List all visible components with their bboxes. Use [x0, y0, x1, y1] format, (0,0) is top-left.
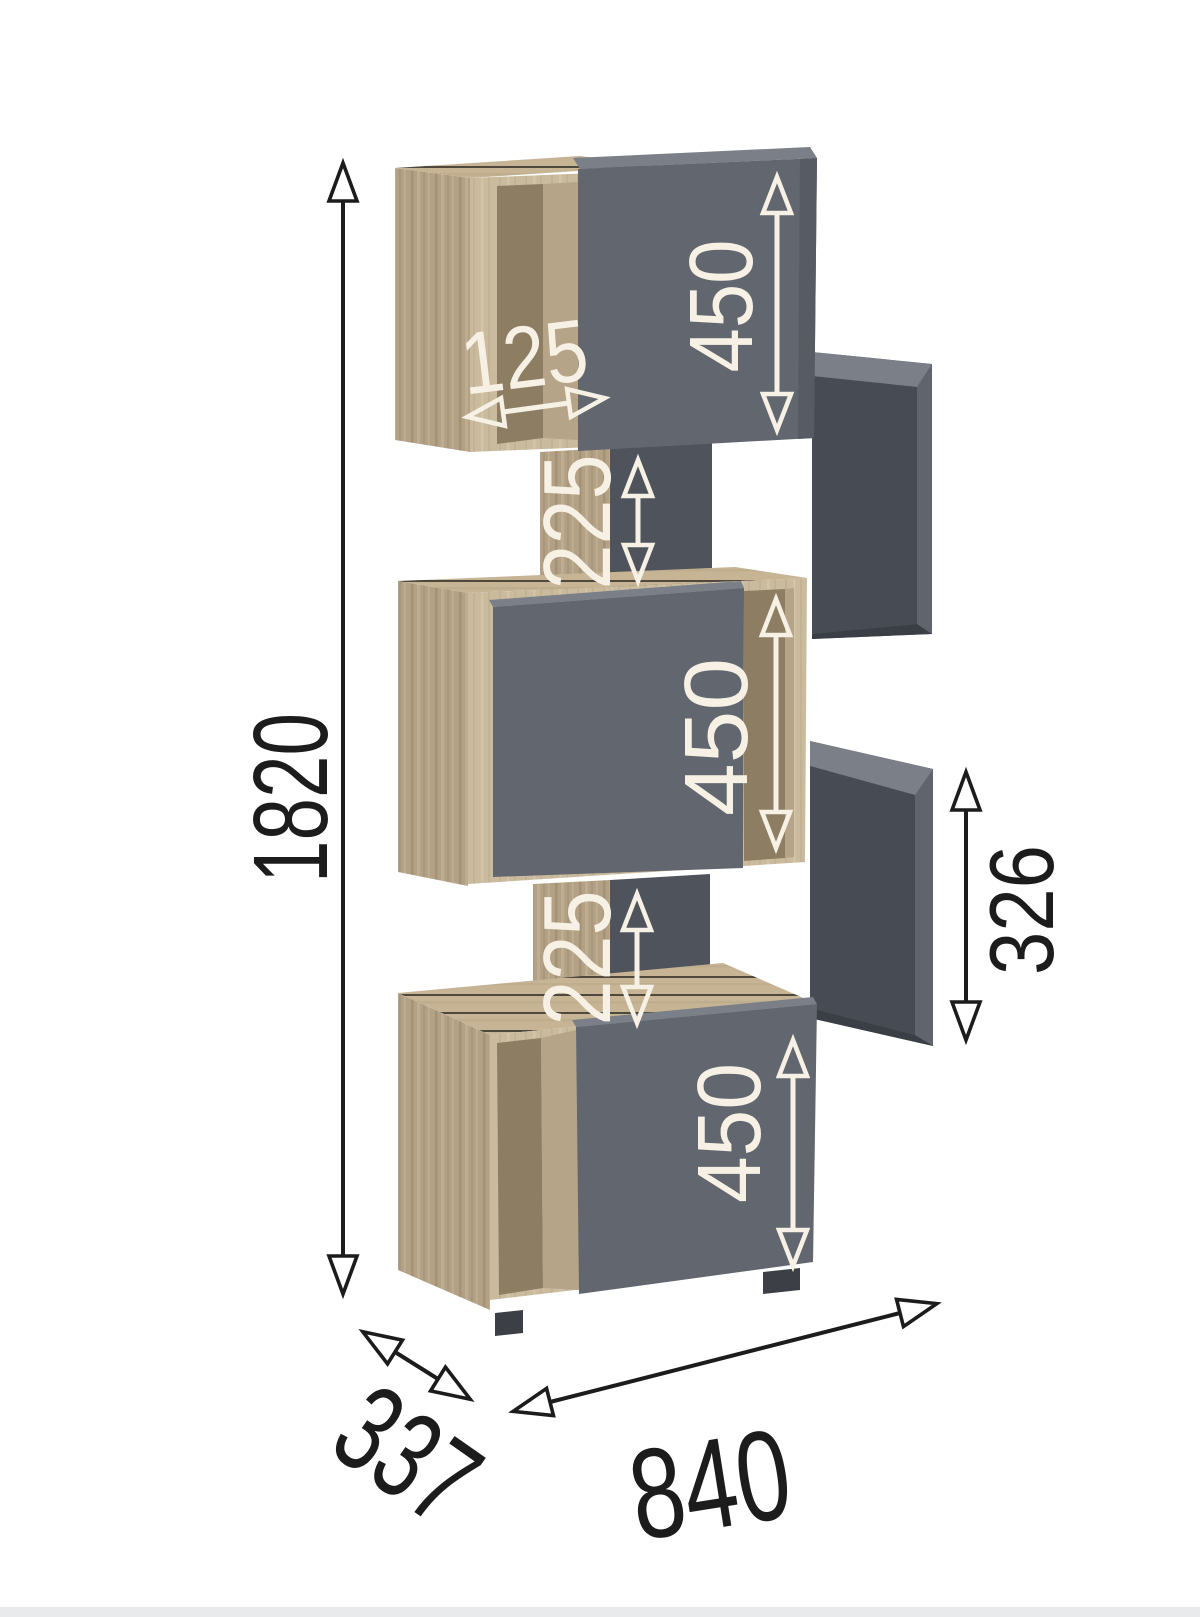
top-cube-side-panel: [395, 168, 470, 452]
dim-upper-gap: 225: [524, 455, 638, 590]
dim-overall-height-label: 1820: [232, 713, 350, 883]
dim-overall-depth-label: 337: [310, 1359, 504, 1552]
lower-side-cube: [810, 741, 933, 1046]
top-cube-door-side-edge: [798, 158, 817, 439]
dim-overall-depth: 337: [310, 1352, 504, 1552]
lower-side-cube-interior: [810, 766, 915, 1035]
dim-side-cube-opening: 326: [966, 810, 1073, 1002]
dim-side-cube-opening-label: 326: [972, 845, 1073, 975]
dim-upper-gap-label: 225: [524, 455, 631, 590]
upper-side-cube-interior: [812, 376, 917, 634]
dim-top-cube-height: 450: [672, 213, 777, 394]
dim-niche-depth: 125: [455, 300, 593, 414]
upper-side-cube: [812, 352, 932, 639]
dimension-diagram-canvas: 1820 125 450 225 450 225 450 326 337: [0, 0, 1200, 1617]
dim-bottom-cube-height-label: 450: [680, 1063, 780, 1203]
middle-cube-niche-wall: [785, 588, 794, 858]
dim-overall-height: 1820: [232, 201, 350, 1256]
shelving-unit-diagram: 1820 125 450 225 450 225 450 326 337: [0, 0, 1200, 1617]
footer-strip: [0, 1607, 1200, 1617]
dim-lower-gap-label: 225: [524, 891, 631, 1026]
bottom-cube-foot-left: [495, 1310, 523, 1336]
middle-cube-side-panel: [398, 581, 468, 886]
bottom-cube-foot-right: [763, 1268, 800, 1294]
dim-middle-cube-height-label: 450: [667, 658, 767, 816]
dim-lower-gap: 225: [524, 891, 637, 1026]
dim-niche-depth-label: 125: [455, 300, 593, 414]
bottom-cube-side-panel: [398, 993, 490, 1310]
dim-overall-width-label: 840: [620, 1402, 800, 1568]
bottom-cube-niche-wall: [541, 1030, 579, 1290]
dim-overall-width: 840: [550, 1313, 900, 1568]
dim-top-cube-height-label: 450: [672, 240, 772, 373]
dim-middle-cube-height: 450: [667, 635, 776, 816]
dim-overall-width-arrow: [550, 1313, 900, 1402]
bottom-cube-niche-interior: [497, 1038, 543, 1295]
